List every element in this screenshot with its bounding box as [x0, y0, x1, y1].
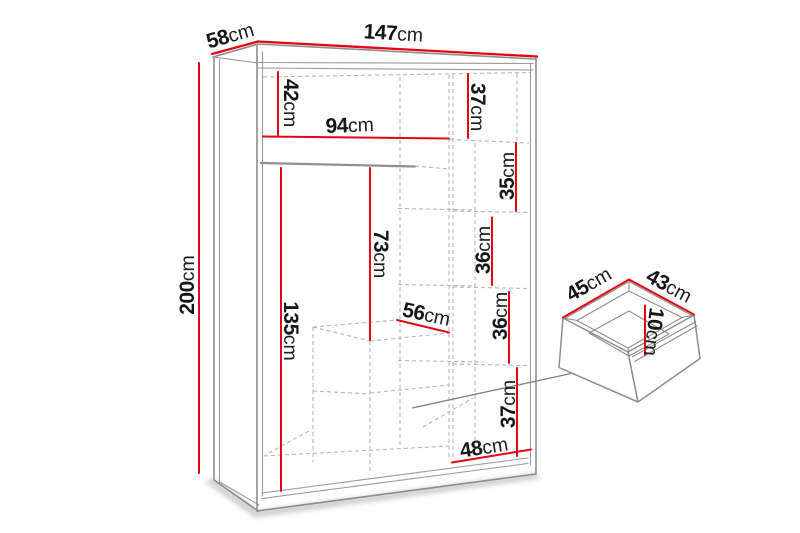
dim-label-total-width: 147cm — [363, 20, 424, 46]
dim-label-drawer-unit-width: 56cm — [400, 298, 452, 331]
dim-label-bottom-compartment-width: 48cm — [458, 432, 509, 462]
dim-label-lower-shelf-height: 36cm — [489, 292, 512, 340]
dim-label-bottom-compartment-height: 37cm — [497, 380, 520, 428]
dim-label-hanging-width: 94cm — [325, 113, 374, 138]
dim-label-rod-to-drawer-height: 73cm — [369, 230, 392, 278]
dim-label-top-right-height: 37cm — [466, 83, 489, 131]
dim-label-hanging-space-height: 135cm — [279, 301, 302, 361]
drawer-leader-line — [412, 372, 578, 408]
diagram-canvas: 147cm 58cm 200cm 42cm 37cm 94cm 35cm 36c… — [0, 0, 800, 533]
dim-line-hanging-width — [263, 137, 449, 139]
wardrobe-dimension-diagram: 147cm 58cm 200cm 42cm 37cm 94cm 35cm 36c… — [0, 0, 800, 533]
hanging-rod — [261, 163, 415, 167]
dimension-labels: 147cm 58cm 200cm 42cm 37cm 94cm 35cm 36c… — [176, 18, 696, 463]
dimension-lines — [199, 42, 694, 492]
dim-label-middle-shelf-height: 36cm — [472, 226, 495, 274]
dim-label-drawer-width: 45cm — [562, 262, 615, 306]
dim-label-top-left-height: 42cm — [279, 79, 302, 127]
dim-label-total-height: 200cm — [176, 255, 199, 315]
dim-label-upper-shelf-height: 35cm — [496, 152, 519, 200]
